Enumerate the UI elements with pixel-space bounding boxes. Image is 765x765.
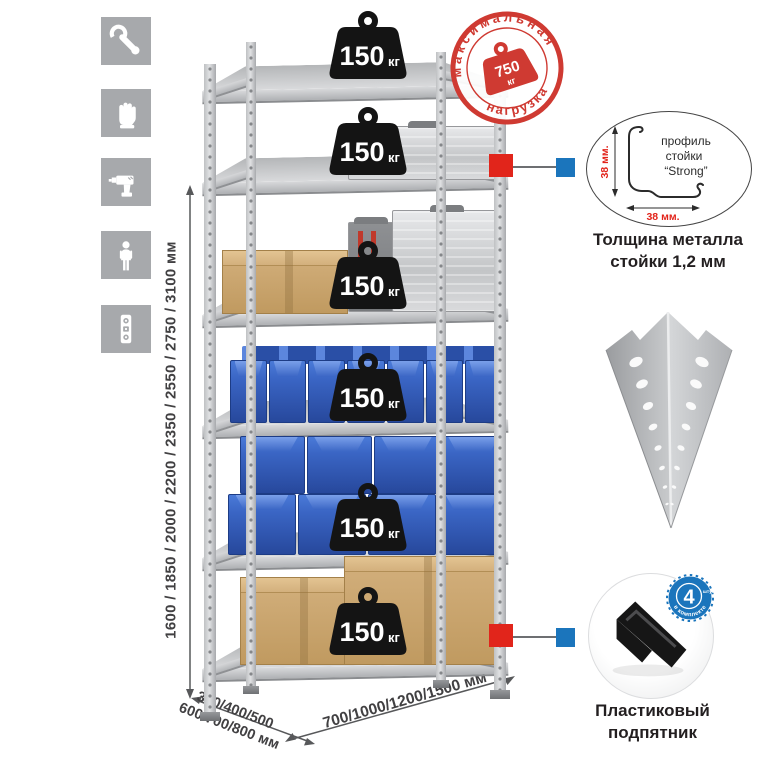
- feature-tile-assembly: [101, 17, 151, 65]
- callout-line-bottom: [510, 636, 562, 638]
- shelf-post-back-right: [436, 52, 446, 682]
- feature-tile-drill: [101, 158, 151, 206]
- svg-text:кг: кг: [388, 284, 401, 299]
- post-profile-drawing: 38 мм. 38 мм. профиль стойки “Strong”: [587, 112, 748, 223]
- shelf-post-front-left: [204, 64, 216, 714]
- svg-text:профиль: профиль: [661, 134, 711, 148]
- shelf-load-badge-6: 150 кг: [316, 586, 420, 662]
- svg-text:штуки: штуки: [703, 589, 716, 594]
- person-icon: [108, 237, 144, 273]
- wrench-icon: [108, 23, 144, 59]
- profile-caption: Толщина металла стойки 1,2 мм: [578, 229, 758, 273]
- svg-text:38 мм.: 38 мм.: [599, 145, 611, 178]
- shelf-load-badge-5: 150 кг: [316, 482, 420, 558]
- feature-tile-person: [101, 231, 151, 279]
- foot-caption: Пластиковый подпятник: [585, 700, 720, 744]
- drill-icon: [108, 164, 144, 200]
- callout-marker-red-bottom: [489, 624, 513, 647]
- svg-text:150: 150: [339, 617, 384, 647]
- gloves-icon: [108, 95, 144, 131]
- svg-text:“Strong”: “Strong”: [664, 164, 707, 178]
- shelf-load-badge-3: 150 кг: [316, 240, 420, 316]
- callout-marker-red-top: [489, 154, 513, 177]
- angle-post-image: [592, 296, 748, 536]
- kit-quantity-badge: 4 штуки в комплекте: [664, 572, 716, 624]
- svg-text:кг: кг: [388, 396, 401, 411]
- svg-text:кг: кг: [388, 54, 401, 69]
- callout-marker-blue-bottom: [556, 628, 575, 647]
- callout-marker-blue-top: [556, 158, 575, 177]
- svg-text:4: 4: [683, 587, 695, 609]
- svg-text:стойки: стойки: [666, 149, 703, 163]
- shelf-post-back-left: [246, 42, 256, 688]
- feature-tile-level: [101, 305, 151, 353]
- svg-text:150: 150: [339, 137, 384, 167]
- svg-text:кг: кг: [388, 630, 401, 645]
- feature-tile-gloves: [101, 89, 151, 137]
- callout-line-top: [510, 166, 562, 168]
- product-diagram: 1600 / 1850 / 2000 / 2200 / 2350 / 2550 …: [0, 0, 765, 765]
- svg-text:150: 150: [339, 513, 384, 543]
- post-profile-detail: 38 мм. 38 мм. профиль стойки “Strong”: [586, 111, 752, 227]
- shelf-load-badge-1: 150 кг: [316, 10, 420, 86]
- svg-text:150: 150: [339, 41, 384, 71]
- svg-text:150: 150: [339, 383, 384, 413]
- svg-text:кг: кг: [388, 526, 401, 541]
- svg-text:38 мм.: 38 мм.: [646, 211, 679, 223]
- level-icon: [108, 311, 144, 347]
- max-load-stamp: максимальная нагрузка 750 кг: [431, 0, 582, 144]
- svg-text:150: 150: [339, 271, 384, 301]
- height-dimension-line: [183, 182, 197, 702]
- shelf-load-badge-2: 150 кг: [316, 106, 420, 182]
- height-dimension-label: 1600 / 1850 / 2000 / 2200 / 2350 / 2550 …: [163, 241, 180, 639]
- svg-text:кг: кг: [388, 150, 401, 165]
- shelf-load-badge-4: 150 кг: [316, 352, 420, 428]
